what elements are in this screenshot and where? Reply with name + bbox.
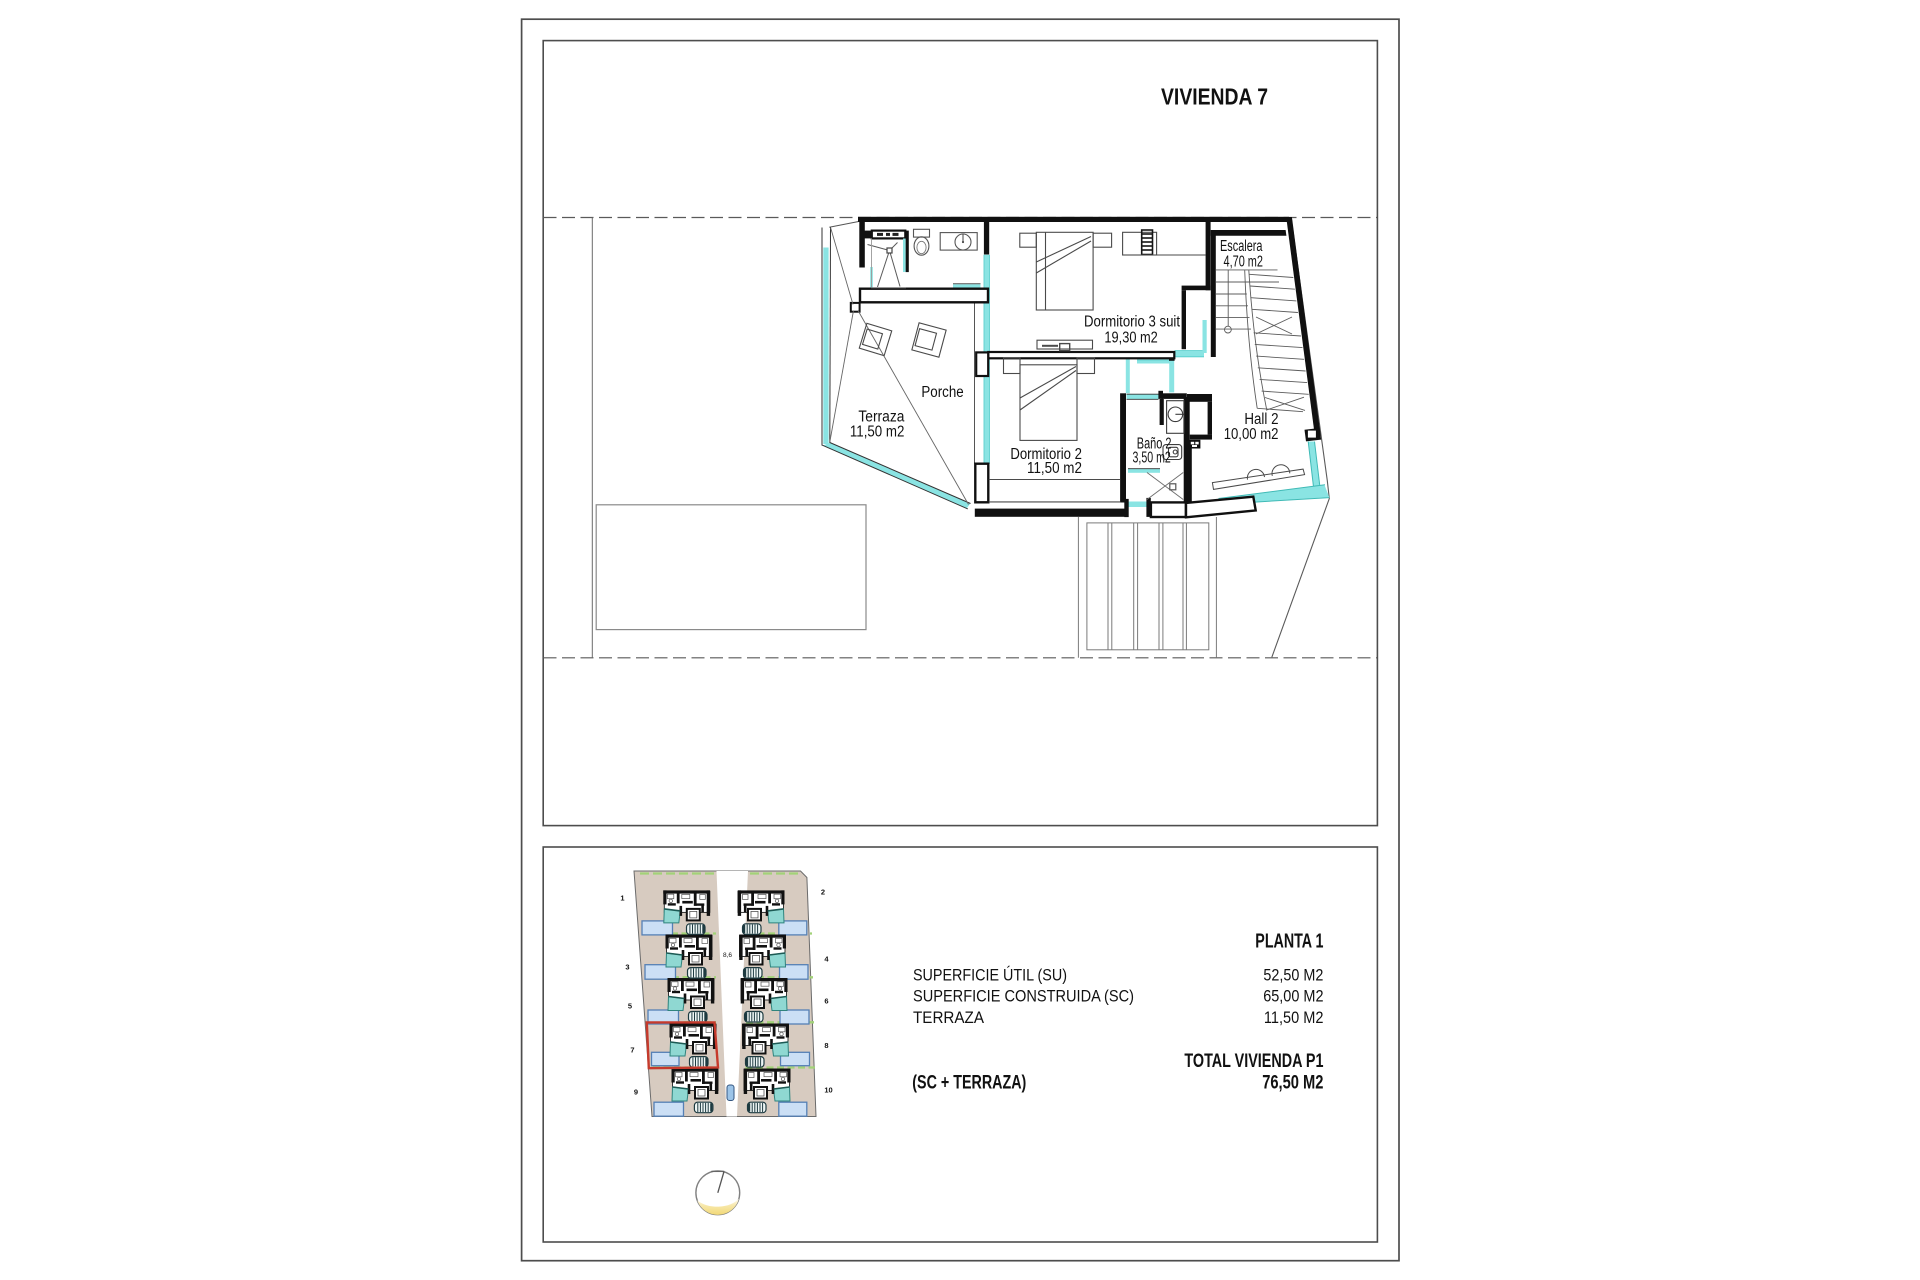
svg-text:1: 1 [620, 894, 624, 903]
svg-text:10,00 m2: 10,00 m2 [1224, 426, 1279, 443]
svg-text:11,50 m2: 11,50 m2 [1027, 460, 1082, 477]
svg-text:8,6: 8,6 [723, 952, 732, 959]
svg-text:6: 6 [824, 997, 828, 1006]
svg-text:Porche: Porche [921, 384, 963, 401]
svg-text:11,50 M2: 11,50 M2 [1264, 1008, 1324, 1027]
svg-text:VIVIENDA 7: VIVIENDA 7 [1161, 84, 1268, 110]
svg-text:10: 10 [824, 1086, 832, 1095]
svg-text:SUPERFICIE ÚTIL (SU): SUPERFICIE ÚTIL (SU) [913, 966, 1067, 985]
svg-text:76,50 M2: 76,50 M2 [1262, 1073, 1323, 1094]
svg-text:65,00 M2: 65,00 M2 [1263, 987, 1323, 1006]
svg-text:4,70 m2: 4,70 m2 [1224, 254, 1264, 271]
svg-text:7: 7 [630, 1046, 634, 1055]
svg-text:3,50 m2: 3,50 m2 [1133, 450, 1171, 467]
svg-text:11,50 m2: 11,50 m2 [850, 423, 905, 440]
svg-text:5: 5 [628, 1002, 632, 1011]
svg-text:2: 2 [821, 888, 825, 897]
svg-text:8: 8 [824, 1041, 828, 1050]
svg-text:52,50 M2: 52,50 M2 [1263, 966, 1323, 985]
svg-text:SUPERFICIE CONSTRUIDA (SC): SUPERFICIE CONSTRUIDA (SC) [913, 987, 1134, 1006]
svg-text:3: 3 [625, 963, 629, 972]
svg-text:PLANTA 1: PLANTA 1 [1255, 931, 1323, 953]
svg-text:TOTAL VIVIENDA P1: TOTAL VIVIENDA P1 [1184, 1051, 1323, 1072]
svg-text:TERRAZA: TERRAZA [913, 1008, 985, 1027]
svg-text:9: 9 [634, 1088, 638, 1097]
svg-text:Dormitorio 3 suit: Dormitorio 3 suit [1084, 314, 1181, 331]
svg-text:Escalera: Escalera [1220, 238, 1263, 255]
svg-text:(SC + TERRAZA): (SC + TERRAZA) [912, 1073, 1026, 1094]
svg-text:19,30 m2: 19,30 m2 [1104, 330, 1157, 347]
